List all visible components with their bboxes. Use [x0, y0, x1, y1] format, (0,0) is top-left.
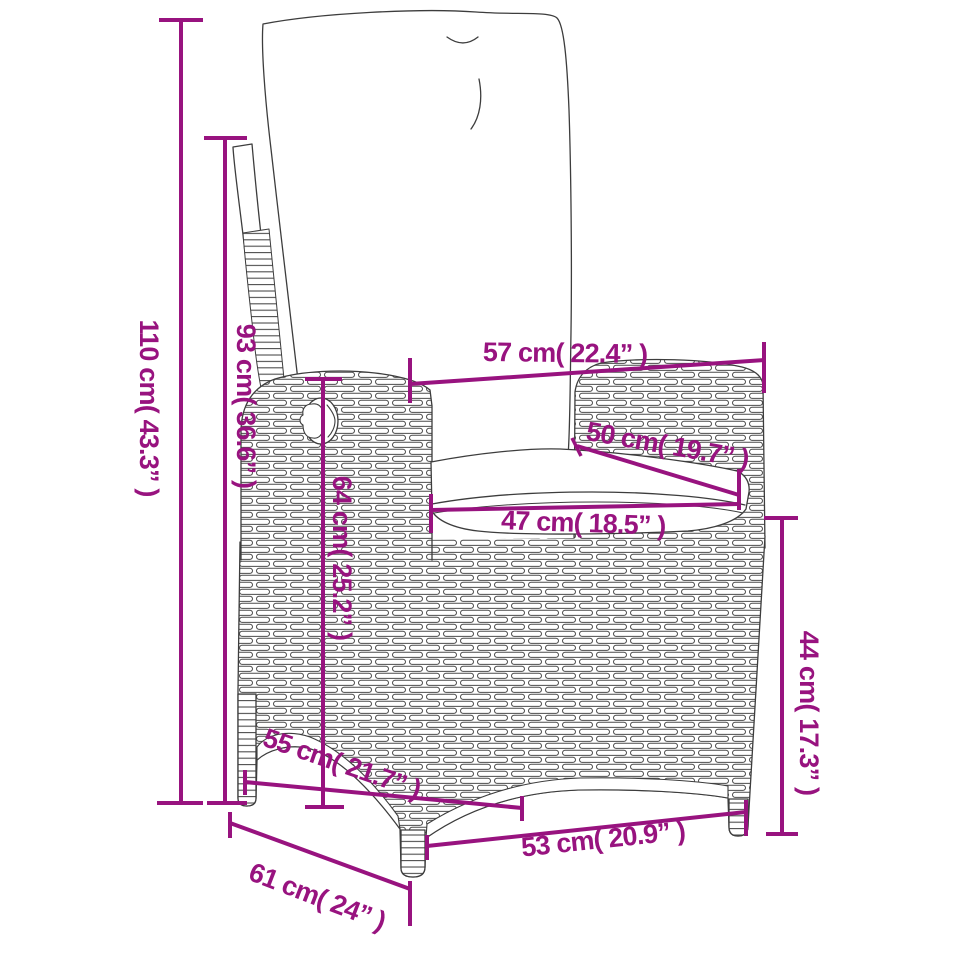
- front-left-leg: [401, 830, 425, 877]
- dim-label-seat-height: 44 cm( 17.3” ): [794, 631, 824, 795]
- diagram-canvas: 110 cm( 43.3” ) 93 cm( 36.6” ) 64 cm( 25…: [0, 0, 955, 955]
- dim-label-back-top-width: 57 cm( 22.4” ): [483, 337, 648, 369]
- dim-label-overall-height: 110 cm( 43.3” ): [134, 319, 164, 496]
- dim-label-seat-width: 47 cm( 18.5” ): [501, 505, 666, 541]
- dim-label-armrest-height: 64 cm( 25.2” ): [327, 476, 357, 640]
- dim-label-base-depth: 61 cm( 24” ): [245, 857, 390, 936]
- dim-label-backrest-height: 93 cm( 36.6” ): [231, 324, 261, 488]
- chair-base-shape: [238, 536, 765, 877]
- dimension-diagram: 110 cm( 43.3” ) 93 cm( 36.6” ) 64 cm( 25…: [0, 0, 955, 955]
- dim-label-front-width: 53 cm( 20.9” ): [520, 816, 687, 863]
